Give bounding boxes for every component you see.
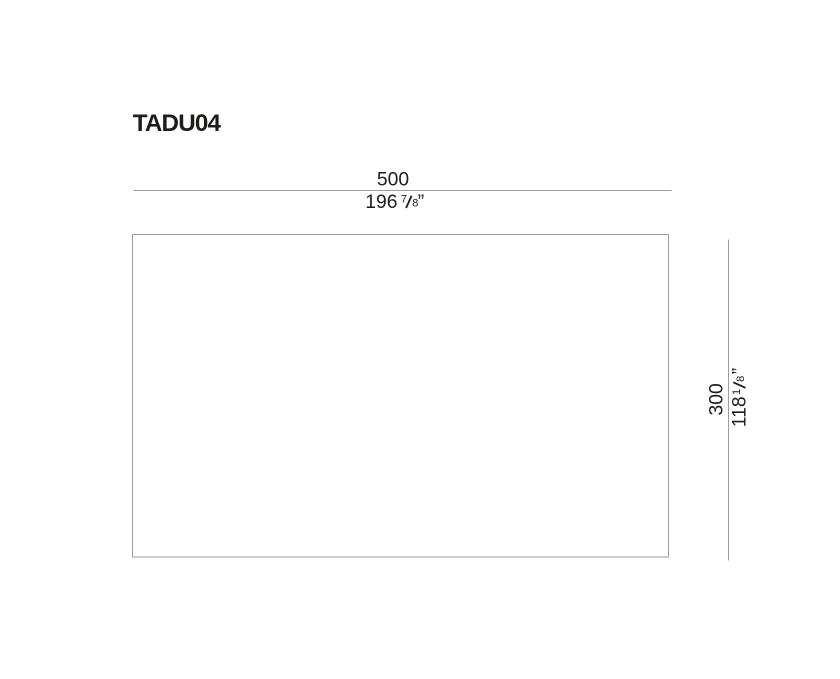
svg-text:TADU04: TADU04 [133, 110, 222, 137]
svg-text:300: 300 [707, 383, 728, 415]
svg-text:”: ” [418, 192, 424, 213]
svg-text:1: 1 [731, 389, 743, 395]
svg-text:500: 500 [377, 169, 409, 190]
svg-text:196: 196 [365, 192, 397, 213]
svg-text:8: 8 [735, 376, 747, 382]
svg-text:”: ” [730, 368, 751, 374]
svg-text:7: 7 [401, 194, 407, 206]
svg-text:118: 118 [730, 396, 751, 427]
